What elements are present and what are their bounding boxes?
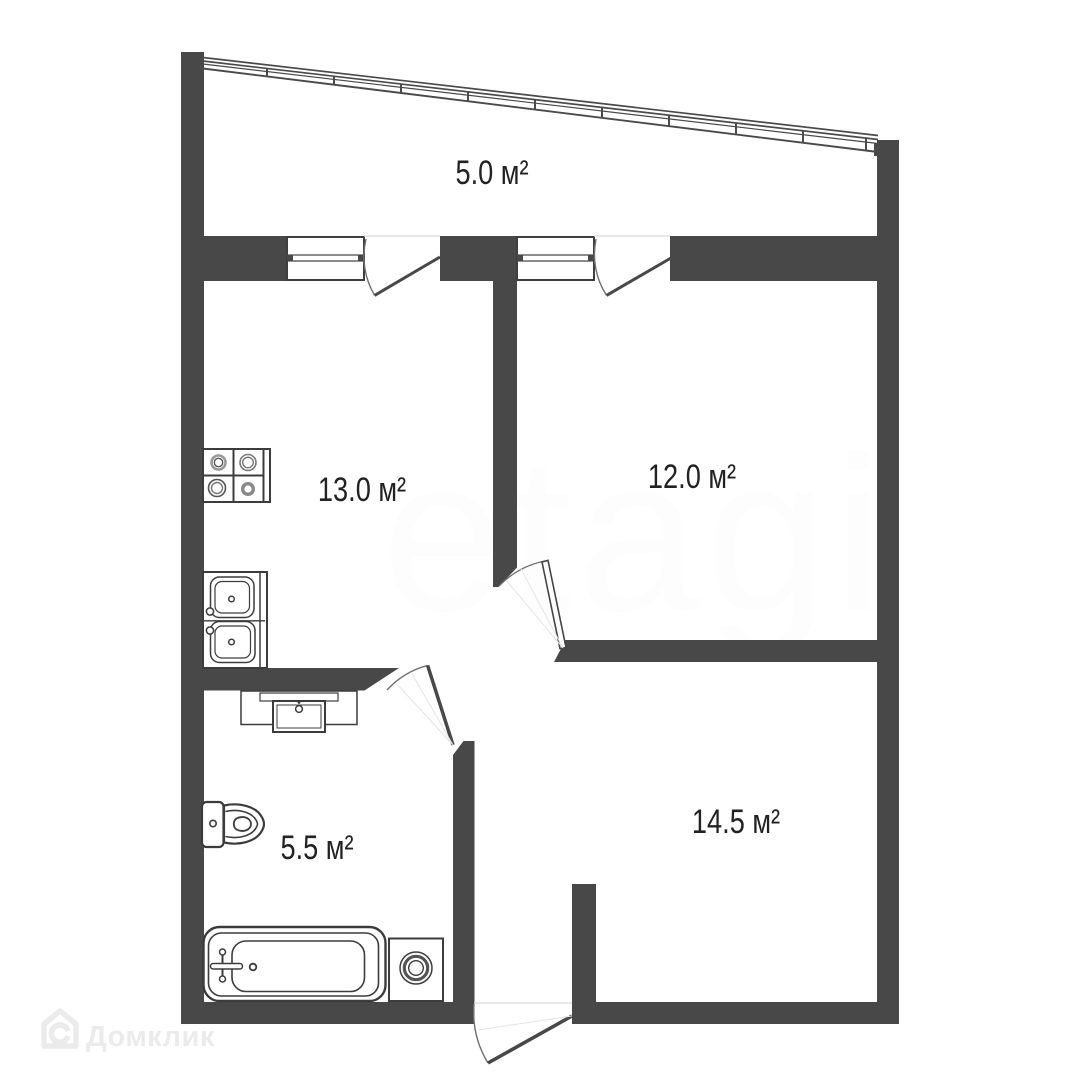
svg-text:13.0 м²: 13.0 м² [318, 470, 406, 509]
svg-text:12.0 м²: 12.0 м² [648, 457, 736, 496]
svg-text:5.0 м²: 5.0 м² [455, 153, 528, 192]
svg-text:14.5 м²: 14.5 м² [692, 802, 780, 841]
svg-text:Домклик: Домклик [86, 1021, 215, 1053]
svg-text:5.5 м²: 5.5 м² [280, 828, 353, 867]
svg-text:etagi: etagi [381, 411, 888, 657]
